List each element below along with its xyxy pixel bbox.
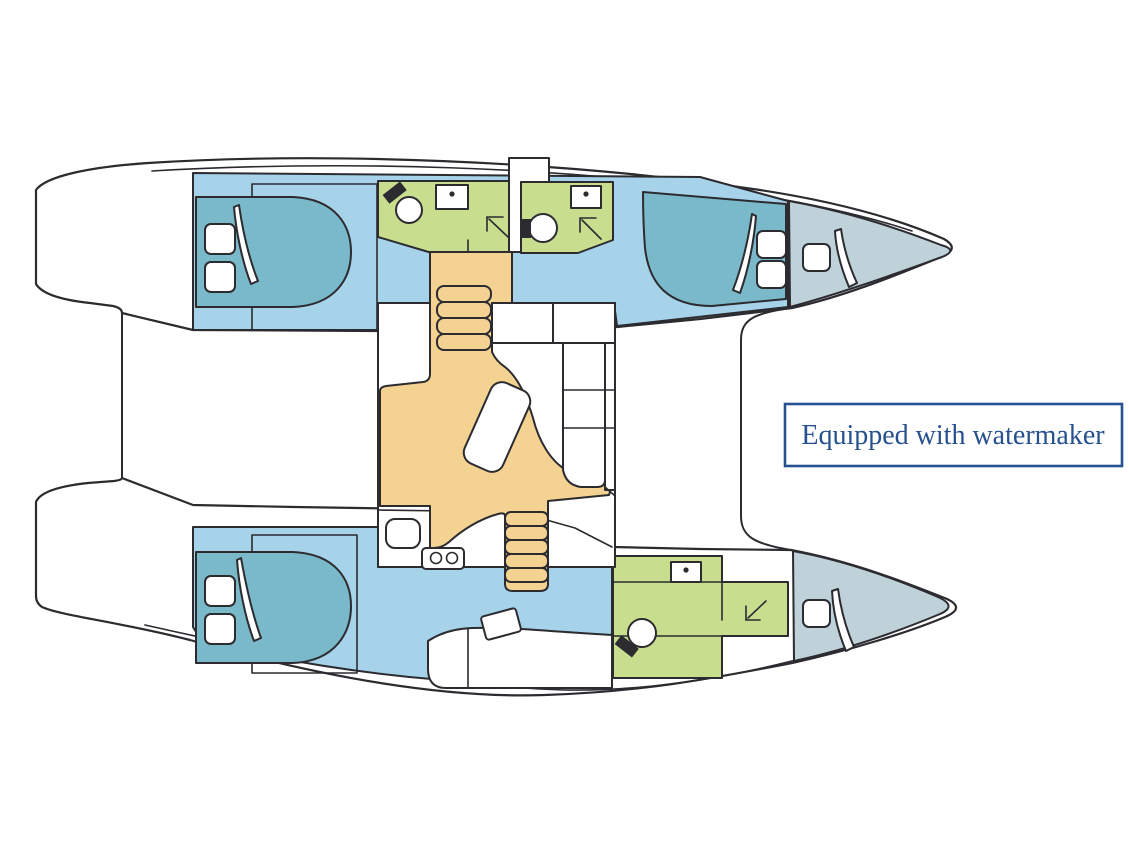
toilet-icon: [529, 214, 557, 242]
catamaran-floorplan: Equipped with watermaker: [0, 0, 1129, 847]
stove-icon: [422, 548, 464, 569]
floorplan-svg: Equipped with watermaker: [0, 0, 1129, 847]
sink-drain-dot: [449, 191, 454, 196]
galley-sink-icon: [386, 519, 420, 548]
stairs-icon: [437, 286, 491, 350]
starboard-aft-bed: [196, 552, 351, 663]
sink-drain-dot: [583, 191, 588, 196]
hatch-icon: [205, 262, 235, 292]
hatch-icon: [757, 261, 786, 288]
hatch-icon: [757, 231, 786, 258]
saloon: [378, 252, 615, 591]
stairs-icon: [505, 512, 548, 582]
hatch-icon: [205, 614, 235, 644]
watermaker-annotation: Equipped with watermaker: [785, 404, 1122, 466]
sofa-icon: [563, 343, 615, 495]
starboard-lounge-seat: [428, 628, 612, 688]
galley-counter: [553, 303, 615, 343]
port-forward-head: [521, 182, 613, 253]
hatch-icon: [205, 224, 235, 254]
hatch-icon: [803, 244, 830, 271]
port-aft-head: [378, 181, 509, 253]
toilet-icon: [628, 619, 656, 647]
sink-icon: [436, 185, 468, 209]
sink-icon: [571, 186, 601, 208]
toilet-tank-icon: [521, 219, 531, 238]
galley-counter: [492, 303, 553, 343]
hatch-icon: [205, 576, 235, 606]
annotation-label: Equipped with watermaker: [801, 420, 1105, 451]
hatch-icon: [803, 600, 830, 627]
toilet-icon: [396, 197, 422, 223]
port-forward-cabin: [643, 192, 786, 306]
trampoline-edge: [741, 308, 791, 550]
starboard-forepeak: [793, 551, 949, 661]
sink-drain-dot: [683, 567, 688, 572]
